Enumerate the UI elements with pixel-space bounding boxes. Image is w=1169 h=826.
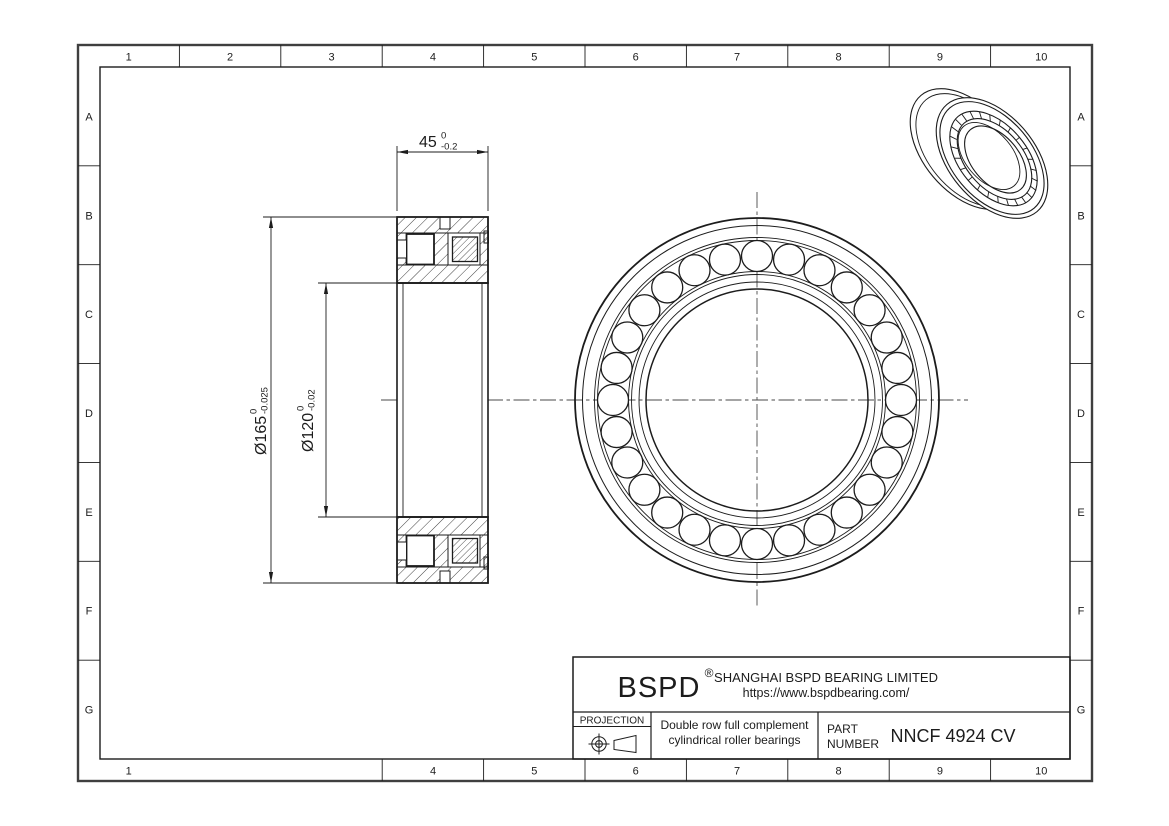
- lubrication-groove: [440, 571, 450, 583]
- grid-label-bottom: 9: [937, 766, 943, 778]
- dim-od-value: Ø165: [253, 416, 270, 455]
- roller: [886, 385, 917, 416]
- grid-label-bottom: 6: [633, 766, 639, 778]
- section-top-half: [397, 217, 489, 283]
- dim-bore-lower-tol: -0.02: [307, 389, 318, 411]
- grid-label-left: F: [86, 606, 93, 618]
- grid-label-top: 4: [430, 52, 436, 64]
- grid-label-left: D: [85, 408, 93, 420]
- grid-label-left: A: [85, 111, 93, 123]
- roller-sectioned: [453, 237, 478, 262]
- grid-label-top: 6: [633, 52, 639, 64]
- roller: [742, 241, 773, 272]
- bearing-description-line1: Double row full complement: [660, 718, 809, 732]
- roller: [679, 255, 710, 286]
- grid-label-top: 8: [835, 52, 841, 64]
- engineering-drawing-page: 12345678910145678910ABCDEFGABCDEFG: [0, 0, 1169, 826]
- iso-roller-tick: [998, 196, 999, 202]
- dim-od-upper-tol: 0: [249, 409, 260, 414]
- company-website: https://www.bspdbearing.com/: [743, 686, 910, 700]
- grid-label-left: E: [85, 507, 92, 519]
- roller: [831, 497, 862, 528]
- roller: [612, 447, 643, 478]
- roller: [742, 529, 773, 560]
- roller: [652, 497, 683, 528]
- roller-sectioned: [453, 539, 478, 564]
- iso-roller-tick: [990, 115, 991, 121]
- grid-reference-marks: 12345678910145678910ABCDEFGABCDEFG: [78, 45, 1092, 781]
- inner-ring-flange: [397, 542, 407, 560]
- lubrication-groove: [440, 217, 450, 229]
- drawing-canvas: 12345678910145678910ABCDEFGABCDEFG: [0, 0, 1169, 826]
- dimension-bore-diameter: Ø120 0 -0.02: [296, 283, 397, 517]
- dim-width-lower-tol: -0.2: [441, 142, 457, 153]
- bearing-description-line2: cylindrical roller bearings: [668, 733, 800, 747]
- inner-frame: [100, 67, 1070, 759]
- roller: [774, 244, 805, 275]
- dimension-width: 45 0 -0.2: [397, 131, 488, 212]
- roller: [854, 295, 885, 326]
- grid-label-left: B: [85, 210, 92, 222]
- grid-label-top: 2: [227, 52, 233, 64]
- roller: [652, 272, 683, 303]
- grid-label-top: 5: [531, 52, 537, 64]
- dim-bore-value: Ø120: [300, 413, 317, 452]
- brand-logo-text: BSPD: [618, 672, 701, 704]
- outer-border: [78, 45, 1092, 781]
- dim-od-lower-tol: -0.025: [260, 387, 271, 414]
- roller: [612, 322, 643, 353]
- roller: [804, 514, 835, 545]
- title-block: BSPD ® SHANGHAI BSPD BEARING LIMITED htt…: [573, 657, 1070, 759]
- grid-label-bottom: 1: [126, 766, 132, 778]
- roller: [629, 295, 660, 326]
- iso-front-face: [914, 77, 1070, 240]
- section-view: [397, 217, 489, 583]
- grid-label-right: G: [1077, 705, 1086, 717]
- roller-plain: [407, 234, 435, 265]
- first-angle-projection-icon: [589, 734, 637, 755]
- isometric-view: [888, 68, 1070, 240]
- bore-outline: [397, 283, 488, 517]
- grid-label-right: D: [1077, 408, 1085, 420]
- roller: [774, 525, 805, 556]
- roller: [871, 322, 902, 353]
- grid-label-right: E: [1077, 507, 1084, 519]
- grid-label-bottom: 5: [531, 766, 537, 778]
- grid-label-right: C: [1077, 309, 1085, 321]
- roller: [709, 525, 740, 556]
- roller-plain: [407, 536, 435, 567]
- part-number: NNCF 4924 CV: [890, 726, 1015, 746]
- inner-ring-flange: [397, 240, 407, 258]
- part-label-line2: NUMBER: [827, 737, 879, 751]
- registered-trademark-symbol: ®: [705, 666, 714, 680]
- roller: [629, 474, 660, 505]
- grid-label-bottom: 7: [734, 766, 740, 778]
- grid-label-right: B: [1077, 210, 1084, 222]
- grid-label-bottom: 4: [430, 766, 436, 778]
- roller: [804, 255, 835, 286]
- grid-label-right: F: [1078, 606, 1085, 618]
- roller: [601, 417, 632, 448]
- section-bottom-half: [397, 517, 489, 583]
- dim-bore-upper-tol: 0: [296, 406, 307, 411]
- grid-label-top: 1: [126, 52, 132, 64]
- roller: [871, 447, 902, 478]
- grid-label-left: C: [85, 309, 93, 321]
- part-label-line1: PART: [827, 722, 859, 736]
- company-name: SHANGHAI BSPD BEARING LIMITED: [714, 670, 938, 685]
- sheet-border: [78, 45, 1092, 781]
- roller: [882, 417, 913, 448]
- roller: [679, 514, 710, 545]
- dim-width-upper-tol: 0: [441, 131, 446, 142]
- grid-label-top: 9: [937, 52, 943, 64]
- roller: [598, 385, 629, 416]
- projection-label: PROJECTION: [580, 716, 644, 727]
- roller: [854, 474, 885, 505]
- roller: [831, 272, 862, 303]
- grid-label-right: A: [1077, 111, 1085, 123]
- grid-label-top: 7: [734, 52, 740, 64]
- grid-label-bottom: 8: [835, 766, 841, 778]
- roller: [601, 352, 632, 383]
- dim-width-value: 45: [419, 134, 437, 151]
- grid-label-bottom: 10: [1035, 766, 1047, 778]
- grid-label-left: G: [85, 705, 94, 717]
- grid-label-top: 10: [1035, 52, 1047, 64]
- dimension-outer-diameter: Ø165 0 -0.025: [249, 217, 397, 583]
- grid-label-top: 3: [328, 52, 334, 64]
- roller: [709, 244, 740, 275]
- roller: [882, 352, 913, 383]
